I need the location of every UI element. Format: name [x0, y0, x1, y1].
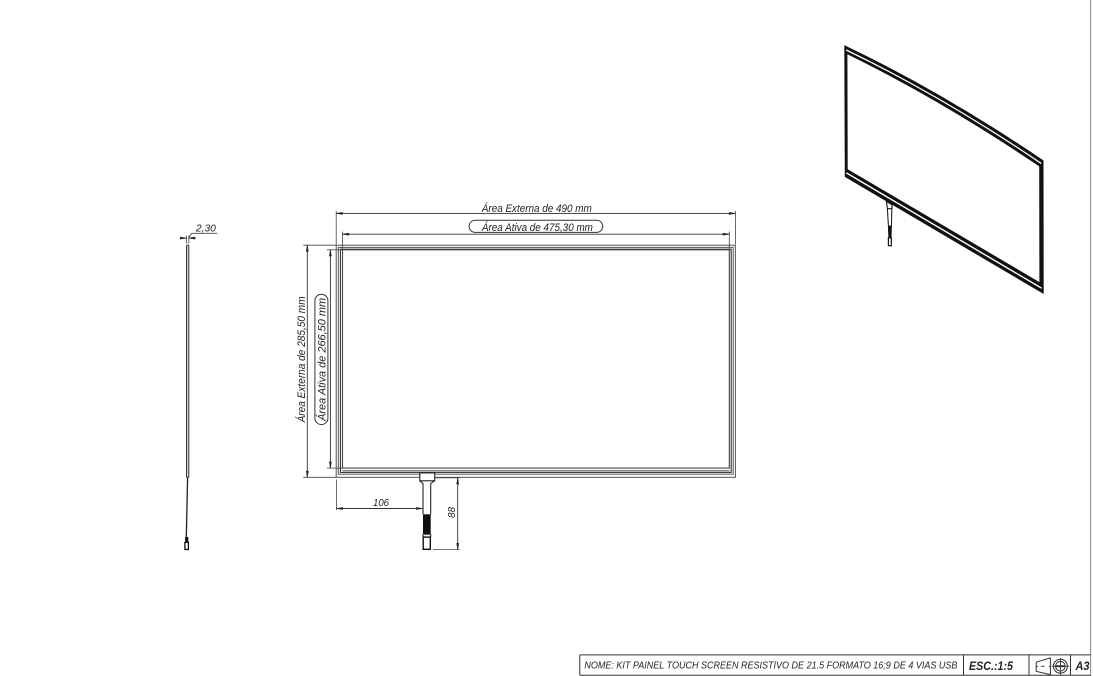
- svg-text:106: 106: [373, 498, 389, 509]
- svg-text:Área Ativa de 266,50 mm: Área Ativa de 266,50 mm: [315, 298, 328, 422]
- svg-text:Área Ativa de 475,30 mm: Área Ativa de 475,30 mm: [481, 221, 593, 234]
- svg-text:2,30: 2,30: [195, 222, 216, 234]
- svg-text:NOME: KIT PAINEL TOUCH SCREEN: NOME: KIT PAINEL TOUCH SCREEN RESISTIVO …: [584, 659, 957, 671]
- svg-text:Área Externa de 285,50 mm: Área Externa de 285,50 mm: [295, 296, 308, 423]
- svg-text:A3: A3: [1075, 661, 1091, 673]
- svg-text:ESC.:1:5: ESC.:1:5: [969, 661, 1014, 673]
- svg-text:Área Externa de 490 mm: Área Externa de 490 mm: [481, 202, 592, 215]
- svg-text:88: 88: [447, 507, 458, 518]
